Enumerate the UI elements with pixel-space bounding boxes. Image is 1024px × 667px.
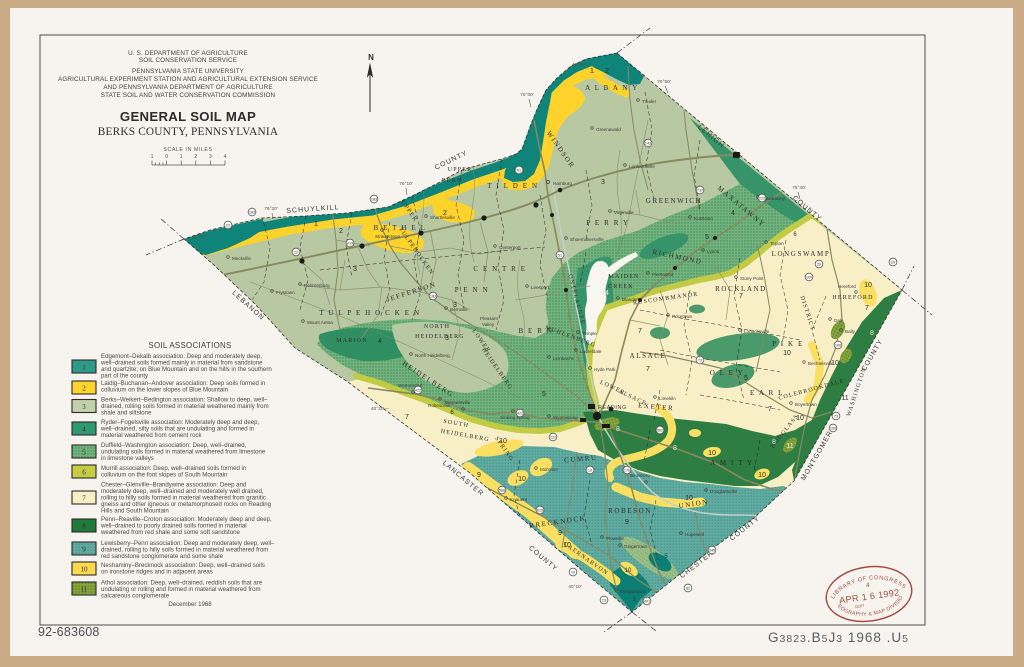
svg-text:Centerport: Centerport xyxy=(499,245,521,250)
svg-text:7: 7 xyxy=(638,328,642,335)
svg-text:10: 10 xyxy=(81,566,89,574)
svg-text:625: 625 xyxy=(537,509,543,513)
svg-text:SCALE IN MILES: SCALE IN MILES xyxy=(163,147,212,153)
svg-text:11: 11 xyxy=(841,395,848,402)
svg-text:P E N N: P E N N xyxy=(455,286,489,294)
svg-text:23: 23 xyxy=(602,599,606,603)
svg-text:in limestone valleys: in limestone valleys xyxy=(101,455,154,462)
svg-text:9: 9 xyxy=(558,530,562,537)
svg-text:Virginville: Virginville xyxy=(614,210,634,215)
svg-text:BERN: BERN xyxy=(442,178,463,184)
svg-text:10: 10 xyxy=(685,495,693,502)
svg-text:Dale: Dale xyxy=(834,318,844,323)
svg-text:ROBESON: ROBESON xyxy=(608,507,652,515)
svg-text:Lobachsville: Lobachsville xyxy=(744,329,770,334)
svg-text:183: 183 xyxy=(371,198,377,202)
svg-text:Robesonia: Robesonia xyxy=(428,403,450,408)
svg-text:10: 10 xyxy=(518,476,526,483)
svg-text:40°20′—: 40°20′— xyxy=(371,406,389,412)
svg-text:345: 345 xyxy=(709,549,715,553)
svg-text:419: 419 xyxy=(347,242,353,246)
svg-text:weathered from red shale and s: weathered from red shale and some soft s… xyxy=(100,529,240,536)
svg-text:3: 3 xyxy=(445,335,449,342)
svg-text:Lyons: Lyons xyxy=(707,249,720,254)
svg-text:82: 82 xyxy=(686,587,690,591)
svg-text:Mohnton: Mohnton xyxy=(540,467,558,472)
svg-text:75°40′: 75°40′ xyxy=(792,185,806,191)
svg-text:A M I T Y: A M I T Y xyxy=(710,459,753,467)
svg-text:9: 9 xyxy=(477,472,481,479)
svg-text:422: 422 xyxy=(517,412,523,416)
svg-text:BERKS COUNTY, PENNSYLVANIA: BERKS COUNTY, PENNSYLVANIA xyxy=(98,126,279,138)
svg-text:Blandon: Blandon xyxy=(622,297,639,302)
svg-text:Meckville: Meckville xyxy=(232,256,251,261)
svg-text:Leinbachs: Leinbachs xyxy=(553,356,575,361)
svg-text:10: 10 xyxy=(588,469,592,473)
svg-text:Pricetown: Pricetown xyxy=(672,314,693,319)
svg-text:Rehrersburg: Rehrersburg xyxy=(304,283,330,288)
svg-text:Temple: Temple xyxy=(582,331,597,336)
svg-text:73: 73 xyxy=(834,415,838,419)
svg-text:7: 7 xyxy=(646,366,650,373)
svg-text:40°10′: 40°10′ xyxy=(568,584,582,590)
svg-text:222: 222 xyxy=(550,436,556,440)
svg-text:10: 10 xyxy=(796,415,804,422)
svg-text:Leesport: Leesport xyxy=(531,285,550,290)
svg-text:22: 22 xyxy=(294,251,298,255)
svg-text:colluvium on the lower slopes: colluvium on the lower slopes of Blue Mo… xyxy=(101,387,228,394)
svg-text:1: 1 xyxy=(151,154,154,160)
svg-text:5: 5 xyxy=(705,234,709,241)
svg-text:7: 7 xyxy=(768,406,772,413)
svg-text:Laureldale: Laureldale xyxy=(580,349,602,354)
svg-text:ALSACE: ALSACE xyxy=(630,352,667,360)
svg-text:22: 22 xyxy=(226,224,230,228)
svg-text:176: 176 xyxy=(624,469,630,473)
svg-text:T U L P E H O C K E N: T U L P E H O C K E N xyxy=(319,309,420,317)
svg-text:183: 183 xyxy=(249,211,255,215)
svg-text:Wyomissing: Wyomissing xyxy=(553,415,578,420)
svg-text:Stony Point: Stony Point xyxy=(740,276,764,281)
svg-text:5: 5 xyxy=(744,375,748,382)
svg-text:9: 9 xyxy=(82,546,86,554)
svg-text:5: 5 xyxy=(82,449,86,457)
svg-text:Bernville: Bernville xyxy=(450,307,468,312)
svg-text:7: 7 xyxy=(739,293,743,300)
svg-text:7: 7 xyxy=(865,305,869,312)
svg-text:1: 1 xyxy=(314,221,318,228)
svg-text:Douglassville: Douglassville xyxy=(710,489,738,494)
svg-text:11: 11 xyxy=(786,443,793,450)
svg-text:shale and siltstone: shale and siltstone xyxy=(101,410,152,417)
svg-text:10: 10 xyxy=(625,568,632,574)
svg-text:Valley: Valley xyxy=(482,322,495,327)
svg-text:MARION: MARION xyxy=(336,338,368,344)
svg-text:183: 183 xyxy=(430,295,436,299)
svg-text:NORTH: NORTH xyxy=(424,324,450,330)
svg-text:73: 73 xyxy=(698,359,702,363)
svg-text:Hyde Park: Hyde Park xyxy=(594,367,616,372)
svg-text:GREENWICH: GREENWICH xyxy=(646,197,702,205)
svg-text:3: 3 xyxy=(353,266,357,273)
svg-text:Limekiln: Limekiln xyxy=(659,396,676,401)
svg-text:5: 5 xyxy=(542,391,546,398)
svg-text:P I K E: P I K E xyxy=(772,340,804,348)
svg-text:737: 737 xyxy=(697,189,703,193)
svg-text:1: 1 xyxy=(590,68,594,75)
svg-text:92-683608: 92-683608 xyxy=(38,625,100,639)
svg-text:10: 10 xyxy=(499,438,507,445)
svg-text:4: 4 xyxy=(82,426,86,434)
svg-text:8: 8 xyxy=(772,439,776,446)
svg-text:Birdsboro: Birdsboro xyxy=(630,473,650,478)
svg-text:Fleetwood: Fleetwood xyxy=(652,272,674,277)
svg-text:10: 10 xyxy=(708,450,716,457)
svg-text:9: 9 xyxy=(625,519,629,526)
svg-text:SOIL ASSOCIATIONS: SOIL ASSOCIATIONS xyxy=(148,341,231,350)
svg-text:ROCKLAND: ROCKLAND xyxy=(715,285,767,293)
svg-text:Geigertown: Geigertown xyxy=(624,544,648,549)
svg-text:SOIL CONSERVATION SERVICE: SOIL CONSERVATION SERVICE xyxy=(139,57,237,64)
svg-text:CREEK: CREEK xyxy=(608,284,634,290)
svg-text:colluvium on the foot slopes o: colluvium on the foot slopes of South Mo… xyxy=(101,472,227,479)
svg-text:3: 3 xyxy=(601,179,605,186)
svg-text:8: 8 xyxy=(870,330,874,337)
svg-text:T I L D E N: T I L D E N xyxy=(487,182,538,190)
svg-text:61: 61 xyxy=(517,169,521,173)
svg-text:Plowville: Plowville xyxy=(606,536,624,541)
svg-text:40°40′—: 40°40′— xyxy=(572,62,590,68)
svg-text:Shartlesville: Shartlesville xyxy=(430,215,455,220)
svg-text:LONGSWAMP: LONGSWAMP xyxy=(772,250,831,258)
svg-text:8: 8 xyxy=(673,445,677,452)
svg-text:2: 2 xyxy=(82,385,86,393)
svg-text:40°30′—: 40°30′— xyxy=(192,234,210,240)
svg-text:Boyertown: Boyertown xyxy=(795,402,817,407)
svg-text:222: 222 xyxy=(759,197,765,201)
svg-text:10: 10 xyxy=(571,571,575,575)
svg-text:HEIDELBERG: HEIDELBERG xyxy=(415,334,465,340)
svg-text:8: 8 xyxy=(82,523,86,531)
svg-text:Knauers: Knauers xyxy=(510,497,528,502)
svg-text:AGRICULTURAL EXPERIMENT STATIO: AGRICULTURAL EXPERIMENT STATION AND AGRI… xyxy=(58,76,318,83)
svg-text:HEREFORD: HEREFORD xyxy=(832,295,873,301)
svg-text:Strausstown: Strausstown xyxy=(375,234,401,239)
svg-text:N: N xyxy=(368,53,374,62)
svg-text:Bechtelsville: Bechtelsville xyxy=(808,361,834,366)
svg-text:4: 4 xyxy=(378,338,382,345)
svg-text:10: 10 xyxy=(758,472,766,479)
svg-text:Morgantown: Morgantown xyxy=(620,589,646,594)
svg-text:422: 422 xyxy=(415,389,421,393)
svg-text:MAIDEN: MAIDEN xyxy=(608,274,639,280)
svg-text:401: 401 xyxy=(644,600,650,604)
svg-text:AND PENNSYLVANIA DEPARTMENT OF: AND PENNSYLVANIA DEPARTMENT OF AGRICULTU… xyxy=(103,84,272,91)
svg-text:562: 562 xyxy=(657,429,663,433)
svg-text:10: 10 xyxy=(864,282,872,289)
svg-text:10: 10 xyxy=(563,542,571,549)
svg-text:76°20′: 76°20′ xyxy=(264,206,278,212)
svg-text:0: 0 xyxy=(165,154,168,160)
svg-text:Hereford: Hereford xyxy=(838,284,856,289)
svg-text:G3823.B5J3 1968 .U5: G3823.B5J3 1968 .U5 xyxy=(768,630,909,645)
svg-text:3: 3 xyxy=(209,154,212,160)
svg-text:143: 143 xyxy=(645,142,651,146)
svg-text:Hills and South Mountain: Hills and South Mountain xyxy=(101,508,169,515)
svg-text:4: 4 xyxy=(224,154,227,160)
svg-text:Hopewell: Hopewell xyxy=(685,532,704,537)
svg-text:100: 100 xyxy=(835,344,841,348)
svg-text:4: 4 xyxy=(731,210,735,217)
svg-text:7: 7 xyxy=(405,414,409,421)
svg-text:29: 29 xyxy=(817,263,821,267)
svg-text:STATE SOIL AND WATER CONSERVAT: STATE SOIL AND WATER CONSERVATION COMMIS… xyxy=(101,92,276,99)
svg-text:calcareous conglomerate: calcareous conglomerate xyxy=(101,593,170,600)
svg-text:2: 2 xyxy=(339,228,343,235)
svg-text:29: 29 xyxy=(891,261,895,265)
svg-text:GENERAL SOIL MAP: GENERAL SOIL MAP xyxy=(120,109,256,124)
svg-text:UPPER: UPPER xyxy=(448,167,473,173)
svg-text:material weathered from cement: material weathered from cement rock xyxy=(101,432,203,439)
svg-text:6: 6 xyxy=(82,469,86,477)
svg-text:100: 100 xyxy=(830,427,836,431)
svg-text:11: 11 xyxy=(81,586,88,594)
svg-text:1: 1 xyxy=(82,364,86,372)
svg-text:O L E Y: O L E Y xyxy=(710,369,745,377)
svg-text:Sinking Spring: Sinking Spring xyxy=(500,415,530,420)
svg-text:76°10′: 76°10′ xyxy=(399,181,413,187)
svg-text:A L B A N Y: A L B A N Y xyxy=(585,84,639,92)
svg-text:Kutztown: Kutztown xyxy=(694,216,713,221)
svg-text:Pleasant: Pleasant xyxy=(480,316,499,321)
svg-text:3: 3 xyxy=(82,403,86,411)
svg-text:568: 568 xyxy=(499,489,505,493)
svg-text:on ironstone ridges and in adj: on ironstone ridges and in adjacent area… xyxy=(101,569,213,576)
svg-text:Topton: Topton xyxy=(770,241,784,246)
svg-text:10: 10 xyxy=(783,350,791,357)
svg-text:4: 4 xyxy=(605,290,609,297)
svg-text:Bally: Bally xyxy=(845,329,856,334)
svg-text:2: 2 xyxy=(194,154,197,160)
svg-text:2: 2 xyxy=(605,68,609,75)
svg-text:December 1968: December 1968 xyxy=(168,601,212,608)
svg-text:READING: READING xyxy=(598,405,627,411)
svg-text:part of the county: part of the county xyxy=(101,373,149,380)
svg-text:61: 61 xyxy=(558,254,562,258)
svg-text:U. S. DEPARTMENT OF AGRICULTUR: U. S. DEPARTMENT OF AGRICULTURE xyxy=(128,50,248,57)
svg-text:8: 8 xyxy=(616,426,620,433)
svg-text:Frystown: Frystown xyxy=(276,290,295,295)
svg-text:North Heidelberg: North Heidelberg xyxy=(415,353,450,358)
svg-text:PENNSYLVANIA STATE UNIVERSITY: PENNSYLVANIA STATE UNIVERSITY xyxy=(132,68,245,75)
svg-text:Trexler: Trexler xyxy=(642,99,657,104)
svg-text:Mount Aetna: Mount Aetna xyxy=(307,320,333,325)
svg-text:red sandstone conglomerate and: red sandstone conglomerate and some shal… xyxy=(101,553,224,560)
svg-text:P E R R Y: P E R R Y xyxy=(586,219,629,227)
svg-text:C E N T R E: C E N T R E xyxy=(473,265,526,273)
svg-text:Greenawald: Greenawald xyxy=(596,127,621,132)
svg-text:1: 1 xyxy=(180,154,183,160)
svg-text:7: 7 xyxy=(82,495,86,503)
svg-text:76°00′: 76°00′ xyxy=(520,92,534,98)
svg-text:Hamburg: Hamburg xyxy=(553,181,572,186)
svg-text:75°50′: 75°50′ xyxy=(657,79,671,85)
svg-text:Lenhartsville: Lenhartsville xyxy=(629,164,655,169)
svg-text:100: 100 xyxy=(806,276,812,280)
svg-text:Shoemakersville: Shoemakersville xyxy=(570,237,604,242)
